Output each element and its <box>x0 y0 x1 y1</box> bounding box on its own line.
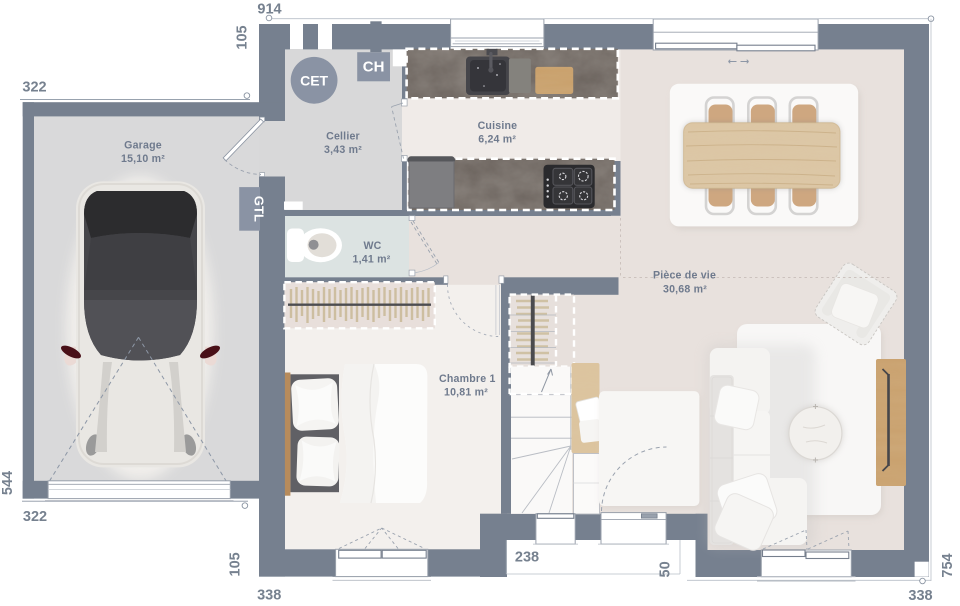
svg-text:238: 238 <box>515 550 539 566</box>
svg-text:105: 105 <box>228 552 244 576</box>
svg-text:CH: CH <box>363 59 385 76</box>
svg-text:3,43 m²: 3,43 m² <box>324 144 362 156</box>
svg-text:914: 914 <box>257 2 281 18</box>
svg-text:338: 338 <box>908 588 932 604</box>
svg-text:1,41 m²: 1,41 m² <box>353 254 391 266</box>
svg-text:15,10 m²: 15,10 m² <box>121 153 165 165</box>
svg-text:544: 544 <box>0 471 16 495</box>
svg-text:WC: WC <box>363 240 381 252</box>
svg-text:GTL: GTL <box>252 196 267 222</box>
svg-text:30,68 m²: 30,68 m² <box>663 284 707 296</box>
svg-text:Chambre 1: Chambre 1 <box>439 373 496 385</box>
svg-text:338: 338 <box>257 588 281 604</box>
svg-text:50: 50 <box>658 561 674 577</box>
svg-text:6,24 m²: 6,24 m² <box>478 134 516 146</box>
svg-text:754: 754 <box>940 553 956 577</box>
svg-text:105: 105 <box>235 25 251 49</box>
svg-text:322: 322 <box>22 80 46 96</box>
svg-text:Pièce de vie: Pièce de vie <box>653 270 716 282</box>
svg-text:Cellier: Cellier <box>326 131 360 143</box>
svg-text:322: 322 <box>23 509 47 525</box>
svg-text:10,81 m²: 10,81 m² <box>444 387 488 399</box>
svg-text:CET: CET <box>300 72 328 88</box>
svg-text:Garage: Garage <box>124 140 162 152</box>
svg-text:Cuisine: Cuisine <box>478 120 518 132</box>
